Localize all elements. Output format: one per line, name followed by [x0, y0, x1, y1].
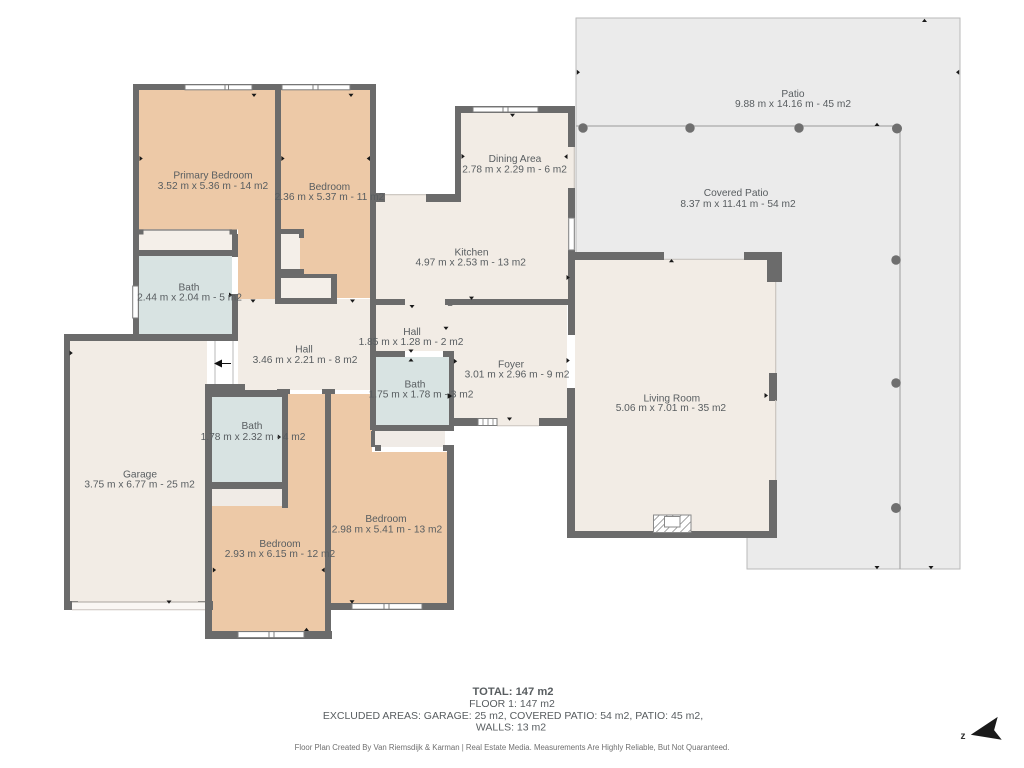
svg-text:Dining Area: Dining Area [489, 154, 542, 165]
svg-text:1.85 m x 1.28 m - 2 m2: 1.85 m x 1.28 m - 2 m2 [359, 337, 464, 348]
svg-text:4.97 m x 2.53 m - 13 m2: 4.97 m x 2.53 m - 13 m2 [415, 258, 526, 269]
svg-text:Bedroom: Bedroom [365, 514, 406, 525]
svg-text:3.01 m x 2.96 m - 9 m2: 3.01 m x 2.96 m - 9 m2 [465, 370, 570, 381]
svg-text:Floor Plan Created By Van Riem: Floor Plan Created By Van Riemsdijk & Ka… [295, 743, 730, 752]
svg-text:Bath: Bath [242, 421, 263, 432]
svg-text:3.52 m x 5.36 m - 14 m2: 3.52 m x 5.36 m - 14 m2 [158, 181, 269, 192]
svg-text:EXCLUDED AREAS: GARAGE: 25 m2,: EXCLUDED AREAS: GARAGE: 25 m2, COVERED P… [323, 710, 703, 722]
svg-text:5.06 m x 7.01 m - 35 m2: 5.06 m x 7.01 m - 35 m2 [616, 403, 727, 414]
svg-text:Covered Patio: Covered Patio [704, 188, 769, 199]
svg-text:3.75 m x 6.77 m - 25 m2: 3.75 m x 6.77 m - 25 m2 [84, 480, 195, 491]
svg-text:2.44 m x 2.04 m - 5 m2: 2.44 m x 2.04 m - 5 m2 [137, 293, 242, 304]
svg-text:8.37 m x 11.41 m - 54 m2: 8.37 m x 11.41 m - 54 m2 [680, 199, 796, 210]
svg-text:TOTAL: 147 m2: TOTAL: 147 m2 [472, 686, 553, 698]
svg-text:9.88 m x 14.16 m - 45 m2: 9.88 m x 14.16 m - 45 m2 [735, 99, 851, 110]
svg-text:1.75 m x 1.78 m - 3 m2: 1.75 m x 1.78 m - 3 m2 [369, 390, 474, 401]
svg-text:2.98 m x 5.41 m - 13 m2: 2.98 m x 5.41 m - 13 m2 [332, 525, 443, 536]
svg-text:WALLS: 13 m2: WALLS: 13 m2 [476, 722, 546, 734]
svg-text:1.78 m x 2.32 m - 4 m2: 1.78 m x 2.32 m - 4 m2 [201, 432, 306, 443]
svg-text:z: z [961, 731, 966, 742]
svg-text:Hall: Hall [295, 345, 313, 356]
svg-text:2.36 m x 5.37 m - 11 m2: 2.36 m x 5.37 m - 11 m2 [275, 192, 385, 203]
svg-text:FLOOR 1: 147 m2: FLOOR 1: 147 m2 [469, 698, 555, 710]
svg-text:3.46 m x 2.21 m - 8 m2: 3.46 m x 2.21 m - 8 m2 [253, 355, 358, 366]
svg-text:2.78 m x 2.29 m - 6 m2: 2.78 m x 2.29 m - 6 m2 [462, 164, 567, 175]
svg-text:2.93 m x 6.15 m - 12 m2: 2.93 m x 6.15 m - 12 m2 [225, 549, 336, 560]
